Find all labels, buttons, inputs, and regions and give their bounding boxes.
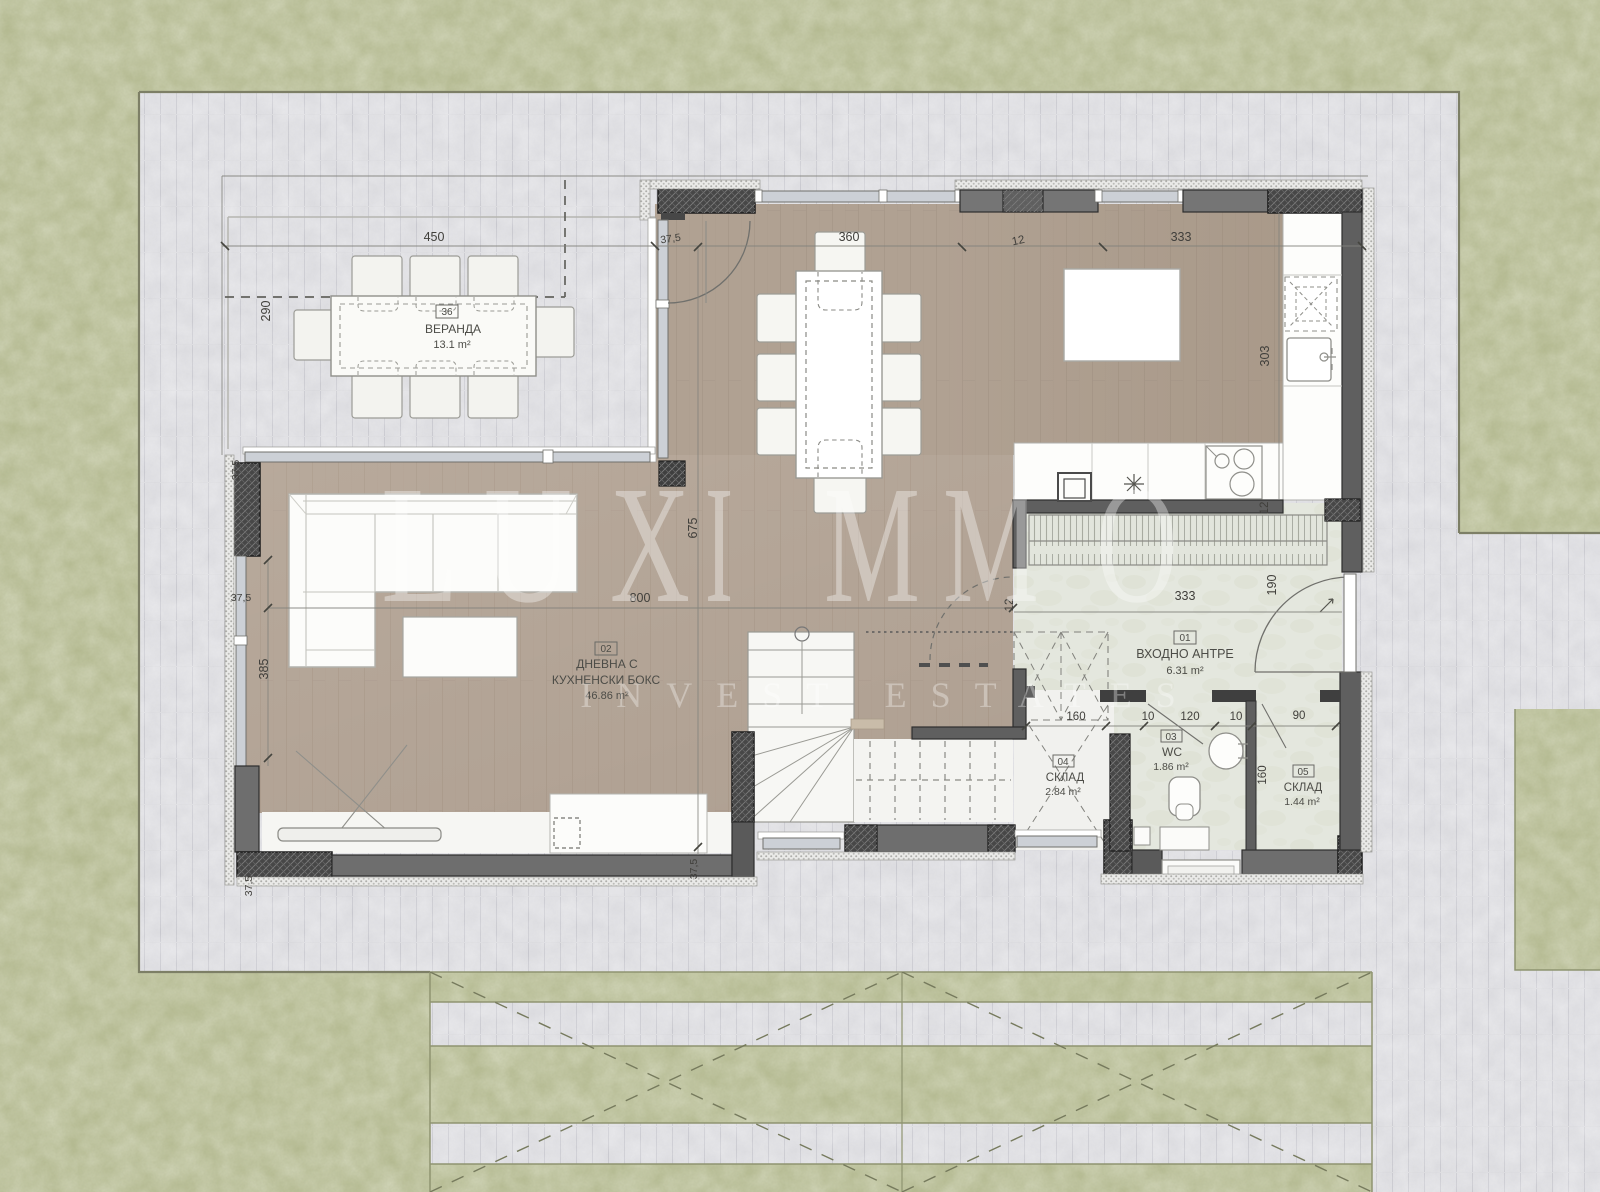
svg-text:ВЕРАНДА: ВЕРАНДА — [425, 322, 481, 336]
svg-text:X: X — [610, 452, 690, 638]
svg-text:WC: WC — [1162, 745, 1182, 759]
svg-text:ВХОДНО АНТРЕ: ВХОДНО АНТРЕ — [1136, 647, 1234, 661]
svg-text:37,5: 37,5 — [688, 859, 700, 880]
svg-text:M: M — [824, 452, 920, 638]
svg-text:03: 03 — [1165, 732, 1177, 743]
svg-text:303: 303 — [1258, 346, 1272, 367]
svg-text:СКЛАД: СКЛАД — [1284, 782, 1323, 794]
svg-text:37,5: 37,5 — [231, 592, 252, 604]
svg-text:13.1 m²: 13.1 m² — [433, 339, 471, 351]
svg-text:O: O — [1096, 452, 1178, 638]
svg-text:U: U — [484, 452, 572, 638]
svg-text:СКЛАД: СКЛАД — [1046, 772, 1085, 784]
svg-text:02: 02 — [600, 644, 612, 655]
svg-text:12: 12 — [1259, 502, 1271, 515]
svg-text:01: 01 — [1179, 633, 1191, 644]
svg-text:37,5: 37,5 — [230, 460, 242, 481]
svg-text:04: 04 — [1057, 757, 1069, 768]
svg-text:10: 10 — [1230, 711, 1243, 723]
svg-text:37,5: 37,5 — [243, 876, 255, 897]
svg-text:90: 90 — [1293, 710, 1306, 722]
svg-text:1.44 m²: 1.44 m² — [1284, 796, 1320, 808]
svg-text:450: 450 — [424, 230, 445, 244]
svg-text:333: 333 — [1171, 230, 1192, 244]
svg-text:05: 05 — [1297, 767, 1309, 778]
svg-text:190: 190 — [1265, 575, 1279, 596]
svg-text:L: L — [381, 452, 459, 638]
svg-text:M: M — [943, 452, 1039, 638]
svg-text:ДНЕВНА С: ДНЕВНА С — [576, 657, 638, 671]
svg-text:1.86 m²: 1.86 m² — [1153, 761, 1189, 773]
svg-text:I: I — [705, 452, 733, 638]
svg-text:160: 160 — [1257, 765, 1269, 784]
svg-text:385: 385 — [257, 659, 271, 680]
svg-text:36: 36 — [441, 307, 453, 318]
svg-text:2.84 m²: 2.84 m² — [1045, 786, 1081, 798]
svg-text:290: 290 — [259, 301, 273, 322]
svg-text:INVEST ESTATES: INVEST ESTATES — [580, 675, 1199, 715]
svg-text:360: 360 — [839, 230, 860, 244]
